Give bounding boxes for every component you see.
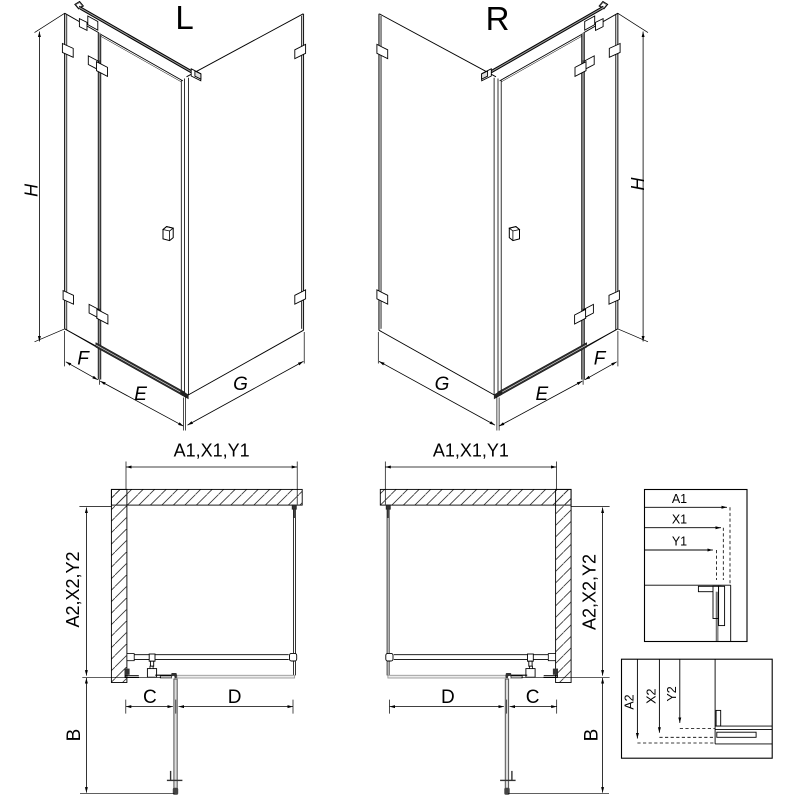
svg-text:E: E <box>536 384 549 405</box>
svg-text:C: C <box>143 687 157 708</box>
svg-text:X1: X1 <box>672 512 687 526</box>
svg-text:A1,X1,Y1: A1,X1,Y1 <box>174 440 250 460</box>
svg-text:B: B <box>581 729 602 742</box>
svg-text:A2,X2,Y2: A2,X2,Y2 <box>579 554 599 630</box>
svg-text:A2,X2,Y2: A2,X2,Y2 <box>63 551 83 627</box>
svg-text:Y2: Y2 <box>665 686 679 701</box>
svg-text:H: H <box>21 183 41 197</box>
svg-text:D: D <box>441 687 455 708</box>
svg-text:X2: X2 <box>645 689 659 704</box>
svg-text:F: F <box>77 348 90 369</box>
svg-text:F: F <box>594 348 607 369</box>
svg-text:A1,X1,Y1: A1,X1,Y1 <box>433 440 509 460</box>
svg-text:A1: A1 <box>672 492 687 506</box>
svg-text:Y1: Y1 <box>672 535 687 549</box>
svg-text:B: B <box>64 729 85 742</box>
svg-text:R: R <box>486 0 510 37</box>
svg-text:D: D <box>228 687 242 708</box>
svg-text:G: G <box>435 374 450 395</box>
svg-text:L: L <box>175 0 193 36</box>
svg-text:C: C <box>526 687 540 708</box>
svg-text:E: E <box>134 384 147 405</box>
svg-text:G: G <box>233 374 248 395</box>
svg-text:A2: A2 <box>623 694 637 709</box>
svg-text:H: H <box>628 177 648 191</box>
